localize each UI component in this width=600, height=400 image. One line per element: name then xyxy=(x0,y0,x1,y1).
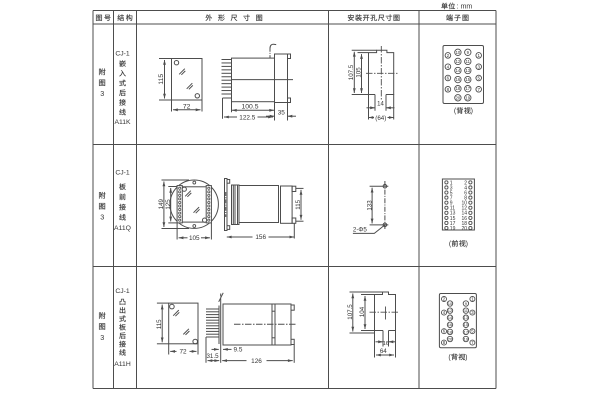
svg-text:A11Q: A11Q xyxy=(114,225,131,232)
svg-text:12: 12 xyxy=(456,59,461,64)
svg-text:133: 133 xyxy=(366,200,373,211)
svg-text:10: 10 xyxy=(448,301,453,306)
svg-text:CJ-1: CJ-1 xyxy=(115,288,130,295)
svg-text:): ) xyxy=(466,241,468,248)
svg-text:3: 3 xyxy=(477,64,480,69)
svg-text:2-Φ5: 2-Φ5 xyxy=(353,227,367,234)
svg-text:115: 115 xyxy=(295,199,302,209)
svg-text:13: 13 xyxy=(465,68,470,73)
svg-text:14: 14 xyxy=(448,315,453,320)
svg-text:100.5: 100.5 xyxy=(241,103,258,110)
svg-text:35: 35 xyxy=(278,109,286,116)
svg-text:A11K: A11K xyxy=(114,119,131,126)
svg-text:105: 105 xyxy=(356,67,363,78)
svg-text:64: 64 xyxy=(380,348,387,355)
svg-text:31.5: 31.5 xyxy=(206,353,219,360)
svg-text:2: 2 xyxy=(447,53,450,58)
svg-text:107.5: 107.5 xyxy=(348,64,355,80)
svg-text:20: 20 xyxy=(456,95,461,100)
svg-text:(: ( xyxy=(448,355,451,362)
svg-text:104: 104 xyxy=(359,306,366,317)
svg-text:20: 20 xyxy=(448,336,453,341)
svg-text:122.5: 122.5 xyxy=(239,114,255,121)
svg-text:(: ( xyxy=(449,241,452,248)
svg-text:20: 20 xyxy=(461,226,467,232)
svg-text:72: 72 xyxy=(183,103,191,110)
svg-text:8: 8 xyxy=(447,87,450,92)
svg-text:5: 5 xyxy=(477,76,480,81)
svg-text:14: 14 xyxy=(456,68,461,73)
svg-text:11: 11 xyxy=(466,59,471,64)
svg-text:14: 14 xyxy=(377,101,384,107)
svg-text:156: 156 xyxy=(255,234,266,241)
svg-text:12: 12 xyxy=(448,308,453,313)
svg-text:15: 15 xyxy=(465,77,470,82)
svg-text:9.5: 9.5 xyxy=(234,347,243,354)
svg-text:17: 17 xyxy=(464,329,469,334)
svg-text:): ) xyxy=(465,355,467,362)
svg-text:(64): (64) xyxy=(375,115,386,122)
svg-text:18: 18 xyxy=(448,329,453,334)
svg-text:13: 13 xyxy=(464,315,469,320)
svg-text:15: 15 xyxy=(464,322,469,327)
svg-text:mm: mm xyxy=(461,3,473,10)
svg-text:3: 3 xyxy=(100,333,104,342)
svg-text:19: 19 xyxy=(465,95,470,100)
svg-text:125: 125 xyxy=(165,199,172,210)
svg-text:CJ-1: CJ-1 xyxy=(115,51,130,58)
svg-text:4: 4 xyxy=(447,64,450,69)
svg-text:9: 9 xyxy=(467,50,470,55)
svg-text:18: 18 xyxy=(456,86,461,91)
svg-text:(: ( xyxy=(454,108,457,115)
svg-text:19: 19 xyxy=(450,226,456,232)
svg-text:3: 3 xyxy=(100,89,104,98)
svg-text:115: 115 xyxy=(156,319,163,329)
svg-text:72: 72 xyxy=(179,349,187,356)
svg-text:3: 3 xyxy=(100,213,104,222)
svg-text:16: 16 xyxy=(383,341,389,347)
svg-text:1: 1 xyxy=(477,53,480,58)
svg-text:115: 115 xyxy=(158,74,165,85)
svg-text::: : xyxy=(457,3,459,10)
svg-text:CJ-1: CJ-1 xyxy=(115,170,130,177)
svg-text:16: 16 xyxy=(448,322,453,327)
svg-text:A11H: A11H xyxy=(114,361,131,368)
svg-text:7: 7 xyxy=(477,87,480,92)
svg-text:149: 149 xyxy=(158,198,165,209)
svg-text:126: 126 xyxy=(251,358,262,365)
svg-text:19: 19 xyxy=(464,336,469,341)
svg-text:6: 6 xyxy=(447,76,450,81)
svg-text:10: 10 xyxy=(456,50,461,55)
svg-text:107.5: 107.5 xyxy=(347,304,354,320)
svg-text:16: 16 xyxy=(456,77,461,82)
svg-text:): ) xyxy=(471,108,473,115)
svg-text:17: 17 xyxy=(465,86,470,91)
svg-text:105: 105 xyxy=(189,235,200,242)
